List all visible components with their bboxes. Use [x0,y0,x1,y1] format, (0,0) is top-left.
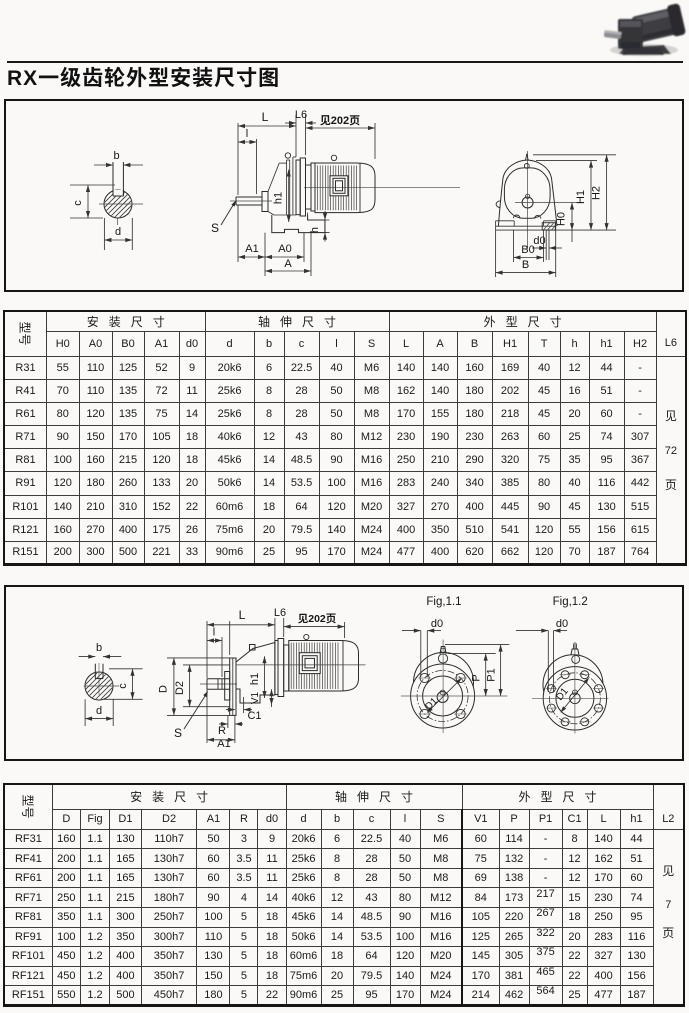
svg-text:S: S [174,726,182,740]
svg-text:d: d [115,226,121,238]
svg-text:D2: D2 [174,681,186,695]
svg-text:c: c [72,200,84,206]
svg-text:L: L [262,110,269,124]
svg-text:h1: h1 [249,673,261,685]
svg-text:l: l [246,128,248,140]
svg-text:R: R [218,725,226,737]
svg-text:V1: V1 [250,691,261,704]
svg-text:b: b [113,150,119,162]
svg-text:H2: H2 [591,186,603,200]
svg-text:B0: B0 [521,244,534,256]
svg-text:B: B [522,259,529,271]
svg-text:h1: h1 [273,192,285,204]
svg-text:A: A [284,258,292,270]
svg-text:A0: A0 [278,243,291,255]
svg-text:A1: A1 [245,243,258,255]
svg-text:L: L [239,608,246,622]
svg-text:L6: L6 [295,109,307,121]
svg-text:H0: H0 [556,212,568,226]
svg-text:d0: d0 [556,618,568,630]
svg-text:L6: L6 [274,607,286,619]
svg-text:d0: d0 [431,618,443,630]
svg-text:S: S [211,221,219,235]
svg-text:C1: C1 [247,710,261,722]
svg-text:Fig,1.1: Fig,1.1 [426,596,461,608]
svg-text:A1: A1 [217,738,230,750]
svg-text:Fig,1.2: Fig,1.2 [553,596,588,608]
svg-text:D: D [158,685,170,693]
svg-text:P: P [470,674,482,681]
svg-text:h: h [309,227,321,233]
svg-text:b: b [96,642,102,654]
svg-text:见202页: 见202页 [320,112,360,128]
svg-text:P1: P1 [485,668,497,681]
svg-text:H1: H1 [575,190,587,204]
svg-text:l: l [213,627,215,639]
svg-text:见202页: 见202页 [298,611,337,626]
svg-text:d: d [96,705,102,717]
